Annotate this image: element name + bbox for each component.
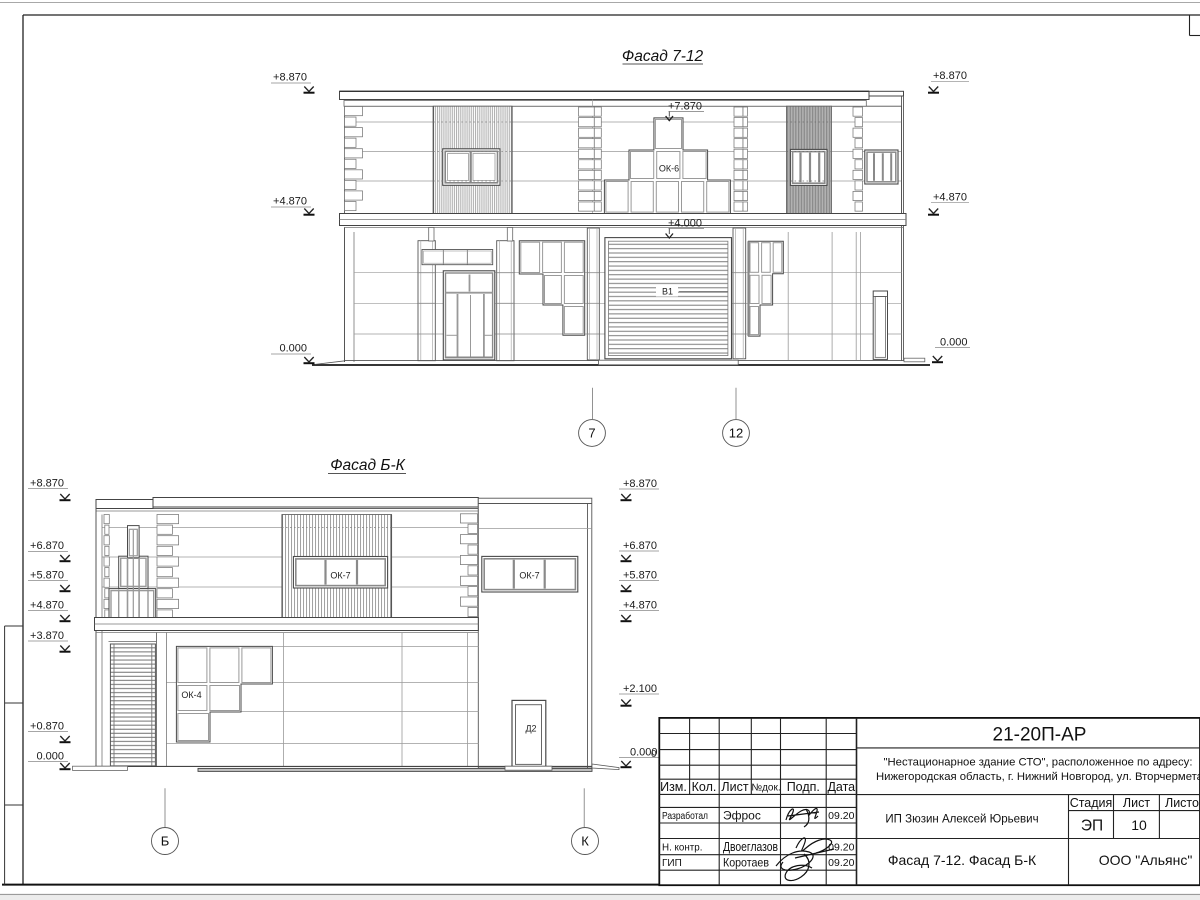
- svg-text:Двоеглазов: Двоеглазов: [723, 840, 778, 854]
- svg-text:+4.870: +4.870: [933, 192, 967, 204]
- svg-text:+5.870: +5.870: [623, 570, 657, 582]
- svg-text:Д2: Д2: [525, 724, 536, 734]
- svg-text:К: К: [581, 834, 589, 849]
- svg-text:ООО "Альянс": ООО "Альянс": [1099, 852, 1193, 868]
- svg-text:Фасад 7-12. Фасад Б-К: Фасад 7-12. Фасад Б-К: [888, 852, 1037, 868]
- svg-text:09.20: 09.20: [828, 810, 854, 822]
- svg-text:+4.870: +4.870: [623, 600, 657, 612]
- svg-text:0.000: 0.000: [279, 343, 307, 355]
- svg-text:0.000: 0.000: [940, 337, 968, 349]
- svg-text:"Нестационарное здание СТО", р: "Нестационарное здание СТО", расположенн…: [884, 757, 1193, 769]
- svg-text:Стадия: Стадия: [1070, 796, 1113, 810]
- svg-text:Фасад 7-12: Фасад 7-12: [622, 48, 704, 65]
- svg-text:Н. контр.: Н. контр.: [662, 843, 702, 854]
- svg-text:ОК-7: ОК-7: [519, 571, 539, 581]
- svg-text:10: 10: [1131, 817, 1147, 833]
- svg-text:ГИП: ГИП: [662, 858, 682, 869]
- svg-text:+8.870: +8.870: [623, 478, 657, 490]
- svg-text:ОК-4: ОК-4: [181, 690, 201, 700]
- svg-text:ИП Зюзин Алексей Юрьевич: ИП Зюзин Алексей Юрьевич: [885, 814, 1038, 826]
- svg-text:Разработал: Разработал: [662, 810, 708, 822]
- svg-text:Фасад Б-К: Фасад Б-К: [330, 457, 405, 474]
- svg-text:Дата: Дата: [827, 780, 855, 794]
- svg-text:+2.100: +2.100: [623, 683, 657, 695]
- svg-text:Кол.: Кол.: [692, 780, 717, 794]
- svg-text:+4.870: +4.870: [30, 600, 64, 612]
- svg-text:+4.870: +4.870: [273, 196, 307, 208]
- svg-text:Листов: Листов: [1165, 796, 1200, 810]
- svg-text:ЭП: ЭП: [1081, 818, 1103, 835]
- svg-text:+8.870: +8.870: [933, 70, 967, 82]
- svg-text:7: 7: [588, 426, 595, 441]
- svg-text:ОК-7: ОК-7: [330, 571, 350, 581]
- svg-text:12: 12: [729, 426, 743, 441]
- svg-text:Изм.: Изм.: [660, 780, 687, 794]
- svg-text:Коротаев: Коротаев: [723, 856, 769, 870]
- svg-text:В1: В1: [662, 287, 673, 297]
- svg-text:+6.870: +6.870: [30, 540, 64, 552]
- svg-text:21-20П-АР: 21-20П-АР: [993, 725, 1087, 746]
- svg-text:№док.: №док.: [751, 783, 780, 794]
- svg-text:+4.000: +4.000: [668, 218, 702, 230]
- svg-text:+7.870: +7.870: [668, 101, 702, 113]
- svg-text:Нижегородская область, г. Нижн: Нижегородская область, г. Нижний Новгоро…: [876, 771, 1200, 783]
- svg-text:09.20: 09.20: [828, 857, 854, 869]
- svg-text:09.20: 09.20: [828, 842, 854, 854]
- svg-text:+3.870: +3.870: [30, 630, 64, 642]
- svg-text:0: 0: [651, 749, 657, 760]
- svg-text:ОК-6: ОК-6: [659, 164, 679, 174]
- svg-text:Подп.: Подп.: [787, 780, 820, 794]
- svg-text:0.000: 0.000: [36, 751, 64, 763]
- svg-text:Б: Б: [161, 834, 170, 849]
- svg-text:+0.870: +0.870: [30, 721, 64, 733]
- svg-text:Эфрос: Эфрос: [723, 809, 761, 823]
- svg-text:+5.870: +5.870: [30, 570, 64, 582]
- svg-text:Лист: Лист: [721, 780, 748, 794]
- svg-text:+6.870: +6.870: [623, 540, 657, 552]
- svg-text:Лист: Лист: [1123, 796, 1150, 810]
- svg-text:+8.870: +8.870: [30, 478, 64, 490]
- svg-text:+8.870: +8.870: [273, 72, 307, 84]
